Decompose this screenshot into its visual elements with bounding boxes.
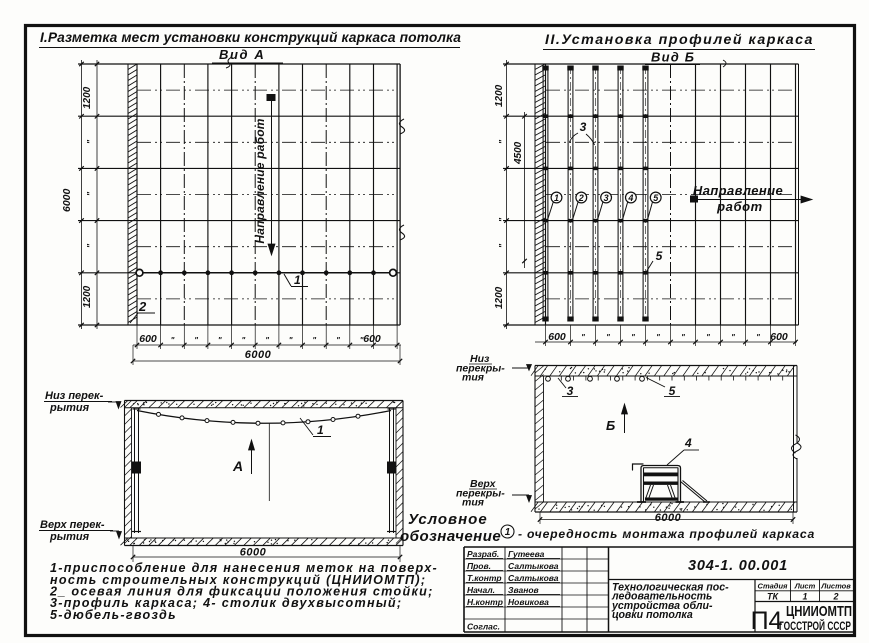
svg-text:": " [360,336,364,345]
svg-text:2: 2 [138,299,147,314]
svg-text:1: 1 [317,423,324,437]
svg-text:тия: тия [462,497,484,509]
svg-text:5: 5 [656,249,663,263]
svg-text:600: 600 [770,331,788,343]
svg-text:Начал.: Начал. [467,585,495,595]
svg-text:": " [312,336,316,345]
svg-text:": " [581,333,585,342]
svg-text:6000: 6000 [245,349,272,361]
svg-text:2: 2 [578,193,584,203]
svg-text:Стадия: Стадия [758,582,788,591]
svg-text:": " [242,336,246,345]
svg-text:- очередность монтажа профил: - очередность монтажа профилей каркаса [518,527,815,541]
svg-text:1: 1 [505,527,511,538]
svg-text:Гутеева: Гутеева [508,549,545,559]
svg-text:Низ перек-: Низ перек- [45,390,104,402]
svg-text:1200: 1200 [494,84,505,107]
svg-text:3: 3 [567,384,574,398]
svg-text:1: 1 [554,193,559,203]
svg-text:I.Разметка мест установки конс: I.Разметка мест установки конструкций ка… [40,30,461,45]
svg-text:": " [171,336,175,345]
svg-text:Направление: Направление [693,183,783,198]
svg-text:2: 2 [832,592,838,602]
svg-text:": " [498,217,508,222]
svg-text:1: 1 [294,273,301,287]
svg-text:Н.контр: Н.контр [467,597,503,607]
svg-text:": " [289,336,293,345]
svg-text:II.Установка профилей каркаса: II.Установка профилей каркаса [545,32,814,48]
svg-text:5: 5 [669,384,676,398]
svg-text:Пров.: Пров. [467,561,491,571]
svg-text:Т.контр: Т.контр [467,573,502,583]
svg-text:ТК: ТК [767,592,779,602]
svg-text:тия: тия [462,372,484,384]
svg-text:4500: 4500 [513,141,524,165]
svg-text:Направление работ: Направление работ [253,118,267,243]
svg-text:6000: 6000 [240,547,267,559]
svg-text:": " [731,333,735,342]
svg-text:Соглас.: Соглас. [467,622,500,632]
svg-text:3: 3 [604,193,609,203]
svg-text:Листов: Листов [820,582,851,591]
svg-text:П4: П4 [751,607,783,635]
svg-text:рытия: рытия [49,531,90,543]
svg-text:6000: 6000 [655,512,682,524]
svg-text:3: 3 [580,120,587,134]
svg-text:": " [606,333,610,342]
svg-text:А: А [232,458,243,474]
svg-text:": " [336,336,340,345]
svg-text:": " [498,139,508,144]
svg-text:": " [86,243,96,248]
svg-text:ЦНИИОМТП: ЦНИИОМТП [786,603,852,620]
svg-text:Условное: Условное [408,511,488,528]
svg-text:Салтыкова: Салтыкова [508,561,559,571]
svg-text:": " [86,139,96,144]
svg-text:4: 4 [627,193,633,203]
svg-text:": " [86,191,96,196]
svg-text:5-дюбель-гвоздь: 5-дюбель-гвоздь [50,608,177,622]
svg-text:Вид А: Вид А [219,47,265,62]
svg-text:": " [681,333,685,342]
svg-text:рытия: рытия [49,402,90,414]
svg-text:обозначение: обозначение [400,528,501,545]
svg-text:1200: 1200 [82,285,93,308]
svg-text:ГОССТРОЙ СССР: ГОССТРОЙ СССР [779,618,851,633]
svg-text:600: 600 [363,333,381,345]
svg-text:1200: 1200 [494,286,505,309]
svg-text:": " [756,333,760,342]
svg-text:Званов: Званов [508,585,539,595]
svg-text:цовки потолка: цовки потолка [612,609,693,621]
svg-text:": " [498,243,508,248]
svg-text:304-1. 00.001: 304-1. 00.001 [688,558,788,574]
svg-text:Новикова: Новикова [508,597,549,607]
svg-text:6000: 6000 [61,188,73,212]
svg-text:600: 600 [139,333,157,345]
svg-text:": " [265,336,269,345]
svg-text:": " [631,333,635,342]
svg-text:1200: 1200 [82,86,93,109]
svg-text:Разраб.: Разраб. [467,549,499,559]
svg-text:Б: Б [606,418,615,433]
svg-text:4: 4 [684,436,692,450]
svg-text:Верх перек-: Верх перек- [40,519,105,531]
svg-text:": " [218,336,222,345]
svg-text:Вид Б: Вид Б [651,50,695,65]
svg-text:Лист: Лист [794,582,816,591]
svg-text:1: 1 [802,592,807,602]
svg-text:": " [194,336,198,345]
svg-text:работ: работ [716,199,763,214]
svg-text:600: 600 [548,331,566,343]
svg-text:": " [706,333,710,342]
svg-text:Салтыкова: Салтыкова [508,573,559,583]
svg-text:": " [656,333,660,342]
